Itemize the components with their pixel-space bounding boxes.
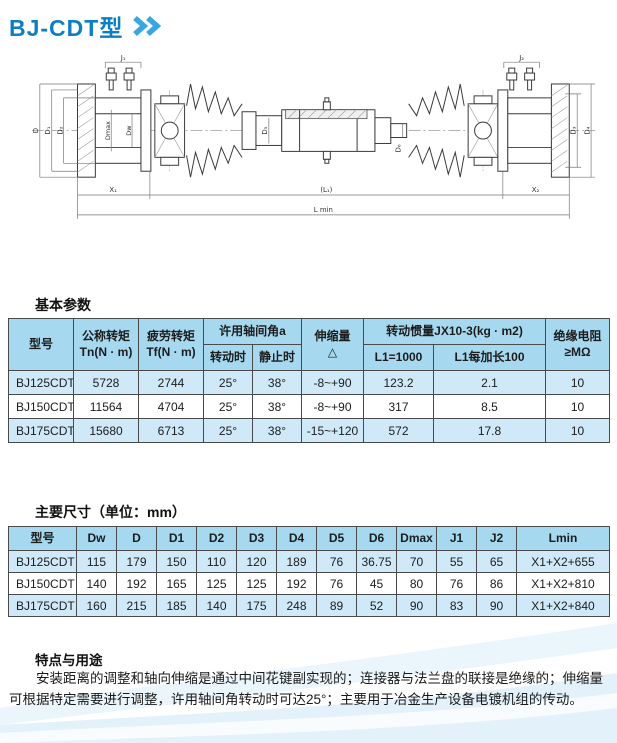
j-dimensions: J₁ J₂ — [105, 54, 539, 68]
double-chevron-icon — [132, 15, 162, 37]
header-angle-rotating: 转动时 — [204, 345, 253, 371]
table-row: BJ125CDT 5728 2744 25° 38° -8~+90 123.2 … — [9, 371, 610, 395]
table-cell: 70 — [397, 551, 437, 573]
dim-label-d4: D₄ — [584, 126, 592, 134]
table-cell: BJ125CDT — [9, 551, 77, 573]
table-cell: -8~+90 — [302, 371, 364, 395]
table-cell: 192 — [117, 573, 157, 595]
table-cell: 110 — [197, 551, 237, 573]
dim-label-lmin: L min — [314, 206, 333, 214]
header-angle-static: 静止时 — [253, 345, 302, 371]
table-row: BJ175CDT 160 215 185 140 175 248 89 52 9… — [9, 595, 610, 617]
length-dimensions: X₁ (L₁) X₂ L min — [78, 171, 570, 219]
table-cell: 76 — [317, 573, 357, 595]
table-cell: X1+X2+655 — [517, 551, 610, 573]
header-cell: D6 — [357, 527, 397, 551]
table-cell: 140 — [77, 573, 117, 595]
dim-label-x2: X₂ — [532, 186, 540, 194]
table-cell: 5728 — [74, 371, 139, 395]
table-cell: 215 — [117, 595, 157, 617]
features-paragraph: 安装距离的调整和轴向伸缩是通过中间花键副实现的；连接器与法兰盘的联接是绝缘的；伸… — [9, 668, 610, 710]
header-extension: 伸缩量 △ — [302, 319, 364, 371]
table-cell: 4704 — [139, 395, 204, 419]
table-cell: 52 — [357, 595, 397, 617]
technical-drawing: D D₁ D₂ Dmax Dw J₁ J₂ — [20, 54, 600, 226]
table-cell: 248 — [277, 595, 317, 617]
table-header-row: 型号 Dw D D1 D2 D3 D4 D5 D6 Dmax J1 J2 Lmi… — [9, 527, 610, 551]
table-cell: 115 — [77, 551, 117, 573]
header-line: Tf(N · m) — [141, 345, 201, 361]
table-cell: BJ175CDT — [9, 419, 74, 443]
header-line: 公称转矩 — [76, 329, 136, 345]
dim-label-d6: D₆ — [395, 144, 403, 152]
table-cell: BJ125CDT — [9, 371, 74, 395]
dim-label-dmax: Dmax — [104, 121, 112, 140]
header-cell: D3 — [237, 527, 277, 551]
header-model: 型号 — [9, 319, 74, 371]
section-title-dimensions: 主要尺寸（单位：mm） — [35, 502, 186, 522]
dim-label-j1: J₁ — [120, 54, 126, 62]
header-cell: D — [117, 527, 157, 551]
table-cell: BJ150CDT — [9, 573, 77, 595]
table-cell: 125 — [237, 573, 277, 595]
table-cell: 86 — [477, 573, 517, 595]
table-cell: BJ150CDT — [9, 395, 74, 419]
dim-label-d3: D₃ — [570, 126, 578, 134]
table-cell: 76 — [317, 551, 357, 573]
table-cell: 175 — [237, 595, 277, 617]
table-cell: BJ175CDT — [9, 595, 77, 617]
table-cell: 38° — [253, 395, 302, 419]
header-inertia-l1000: L1=1000 — [364, 345, 434, 371]
table-cell: 76 — [437, 573, 477, 595]
header-inertia-per100: L1每加长100 — [434, 345, 546, 371]
dim-label-d5: D₅ — [261, 126, 269, 134]
header-cell: D4 — [277, 527, 317, 551]
table-cell: 317 — [364, 395, 434, 419]
header-nominal-torque: 公称转矩 Tn(N · m) — [74, 319, 139, 371]
table-cell: 160 — [77, 595, 117, 617]
table-cell: 90 — [397, 595, 437, 617]
table-cell: 25° — [204, 371, 253, 395]
dim-label-dw: Dw — [125, 125, 133, 135]
header-inertia-group: 转动惯量JX10-3(kg · m2) — [364, 319, 546, 345]
dim-label-d2: D₂ — [57, 126, 65, 134]
header-cell: Dmax — [397, 527, 437, 551]
page-header: BJ-CDT型 — [9, 9, 162, 43]
left-bearing — [155, 96, 185, 165]
header-cell: D1 — [157, 527, 197, 551]
left-flange-bolts — [106, 68, 134, 90]
header-cell: Dw — [77, 527, 117, 551]
table-cell: 10 — [546, 419, 610, 443]
table-cell: 89 — [317, 595, 357, 617]
table-row: BJ150CDT 11564 4704 25° 38° -8~+90 317 8… — [9, 395, 610, 419]
table-cell: 90 — [477, 595, 517, 617]
table-cell: 11564 — [74, 395, 139, 419]
dim-label-l1: (L₁) — [320, 186, 332, 194]
table-row: BJ125CDT 115 179 150 110 120 189 76 36.7… — [9, 551, 610, 573]
table-cell: 10 — [546, 395, 610, 419]
table-cell: X1+X2+840 — [517, 595, 610, 617]
header-line: 绝缘电阻 — [548, 329, 607, 345]
table-cell: 150 — [157, 551, 197, 573]
table-cell: 38° — [253, 419, 302, 443]
header-cell: Lmin — [517, 527, 610, 551]
header-cell: J2 — [477, 527, 517, 551]
header-cell: J1 — [437, 527, 477, 551]
table-cell: 8.5 — [434, 395, 546, 419]
dim-label-j2: J₂ — [518, 54, 524, 62]
table-cell: 10 — [546, 371, 610, 395]
dim-label-x1: X₁ — [109, 186, 117, 194]
table-cell: 45 — [357, 573, 397, 595]
table-cell: 36.75 — [357, 551, 397, 573]
header-insulation: 绝缘电阻 ≥MΩ — [546, 319, 610, 371]
section-title-features: 特点与用途 — [35, 649, 103, 669]
table-cell: 17.8 — [434, 419, 546, 443]
header-cell: 型号 — [9, 527, 77, 551]
table-cell: 123.2 — [364, 371, 434, 395]
page: BJ-CDT型 — [0, 0, 617, 743]
header-cell: D2 — [197, 527, 237, 551]
header-cell: D5 — [317, 527, 357, 551]
table-cell: 25° — [204, 395, 253, 419]
table-cell: 125 — [197, 573, 237, 595]
table-cell: -8~+90 — [302, 395, 364, 419]
right-flange — [498, 84, 569, 177]
header-line: 伸缩量 — [304, 329, 361, 345]
table-cell: 80 — [397, 573, 437, 595]
table-cell: 185 — [157, 595, 197, 617]
table-cell: 2.1 — [434, 371, 546, 395]
table-cell: 179 — [117, 551, 157, 573]
table-cell: 189 — [277, 551, 317, 573]
header-line: △ — [304, 345, 361, 361]
table-cell: 6713 — [139, 419, 204, 443]
table-cell: 192 — [277, 573, 317, 595]
table-cell: 65 — [477, 551, 517, 573]
table-cell: 25° — [204, 419, 253, 443]
table-cell: 38° — [253, 371, 302, 395]
header-line: 疲劳转矩 — [141, 329, 201, 345]
header-fatigue-torque: 疲劳转矩 Tf(N · m) — [139, 319, 204, 371]
table-cell: 83 — [437, 595, 477, 617]
right-flange-bolts — [507, 68, 535, 90]
basic-params-table: 型号 公称转矩 Tn(N · m) 疲劳转矩 Tf(N · m) 许用轴间角a … — [8, 318, 610, 443]
dim-label-d1: D₁ — [44, 126, 52, 134]
table-row: BJ175CDT 15680 6713 25° 38° -15~+120 572… — [9, 419, 610, 443]
table-cell: 15680 — [74, 419, 139, 443]
header-line: Tn(N · m) — [76, 345, 136, 361]
dim-label-d: D — [32, 128, 40, 133]
table-cell: 55 — [437, 551, 477, 573]
section-title-basic-params: 基本参数 — [35, 295, 91, 315]
right-bearing — [468, 96, 498, 165]
table-cell: -15~+120 — [302, 419, 364, 443]
table-cell: 140 — [197, 595, 237, 617]
table-cell: 165 — [157, 573, 197, 595]
table-row: BJ150CDT 140 192 165 125 125 192 76 45 8… — [9, 573, 610, 595]
header-angle-group: 许用轴间角a — [204, 319, 302, 345]
table-cell: 2744 — [139, 371, 204, 395]
header-line: ≥MΩ — [548, 345, 607, 361]
page-title: BJ-CDT型 — [9, 9, 123, 43]
dimensions-table: 型号 Dw D D1 D2 D3 D4 D5 D6 Dmax J1 J2 Lmi… — [8, 526, 610, 617]
table-cell: 120 — [237, 551, 277, 573]
table-cell: X1+X2+810 — [517, 573, 610, 595]
table-cell: 572 — [364, 419, 434, 443]
